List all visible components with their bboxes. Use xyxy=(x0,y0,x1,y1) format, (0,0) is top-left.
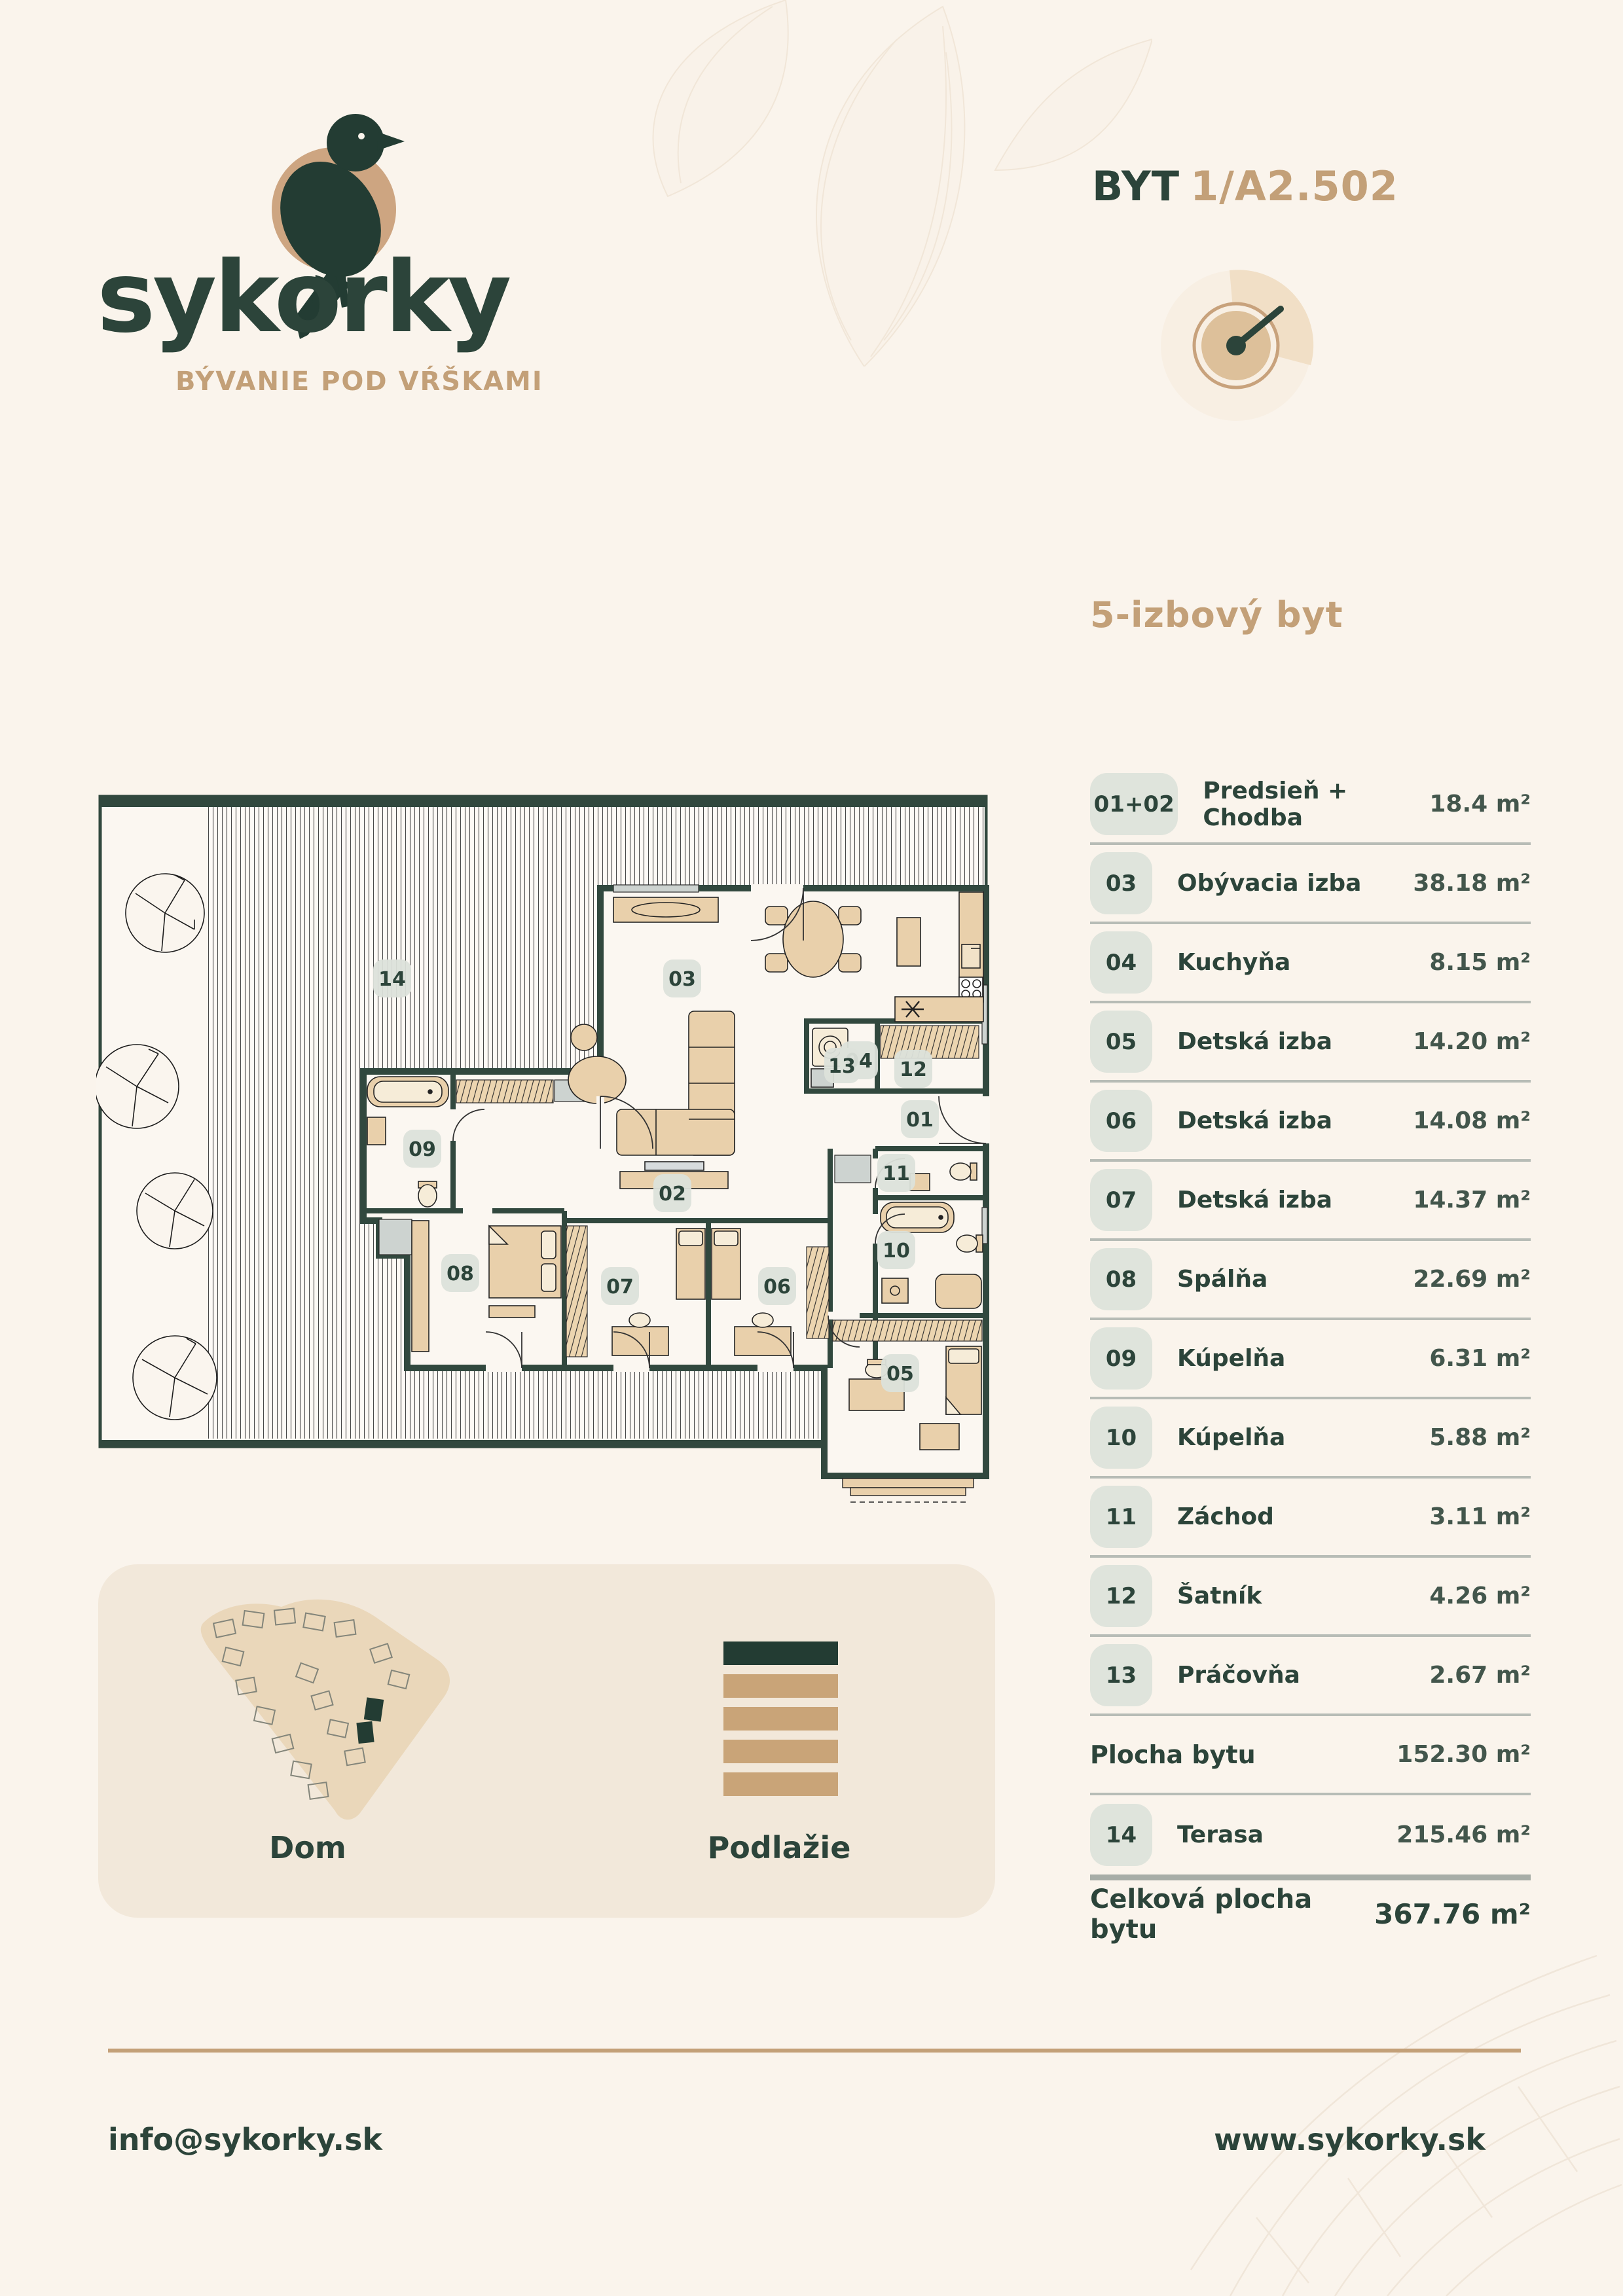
table-row-terasa: 14Terasa215.46 m² xyxy=(1090,1795,1531,1874)
room-name: Detská izba xyxy=(1177,1028,1332,1055)
room-name: Kúpelňa xyxy=(1177,1424,1285,1451)
room-area: 18.4 m² xyxy=(1429,791,1531,817)
table-row: 04Kuchyňa8.15 m² xyxy=(1090,924,1531,1003)
wardrobe-low-icon xyxy=(412,1221,429,1352)
room-name: Terasa xyxy=(1177,1821,1264,1848)
table-row: 01+02Predsieň + Chodba18.4 m² xyxy=(1090,766,1531,845)
sideboard-icon xyxy=(613,897,718,922)
toilet-icon xyxy=(957,1235,983,1252)
total-label: Celková plocha bytu xyxy=(1090,1884,1374,1945)
leaf-decoration-top xyxy=(589,0,1152,367)
side-table-icon xyxy=(571,1024,597,1050)
floorplan-room-badge-03: 03 xyxy=(663,960,701,997)
room-table: 01+02Predsieň + Chodba18.4 m² 03Obývacia… xyxy=(1090,766,1531,1948)
single-bed-icon xyxy=(946,1346,981,1414)
room-area: 14.37 m² xyxy=(1413,1187,1531,1213)
tree-icon xyxy=(126,874,204,952)
svg-text:02: 02 xyxy=(659,1183,686,1206)
room-area: 8.15 m² xyxy=(1429,949,1531,976)
svg-text:06: 06 xyxy=(763,1276,791,1299)
floorplan-room-badge-07: 07 xyxy=(601,1267,639,1305)
apartment-type-heading: 5-izbový byt xyxy=(1090,594,1343,636)
floorplan-room-badge-06: 06 xyxy=(758,1267,796,1305)
sink-icon xyxy=(367,1117,386,1145)
floorplan-room-badge-02: 02 xyxy=(653,1174,691,1212)
floorplan-room-badge-08: 08 xyxy=(441,1254,479,1292)
table-row-total: Celková plocha bytu367.76 m² xyxy=(1090,1874,1531,1948)
room-number-badge: 14 xyxy=(1090,1804,1152,1866)
room-number-badge: 06 xyxy=(1090,1090,1152,1152)
tree-icon xyxy=(96,1045,179,1128)
floor-bar-2 xyxy=(723,1740,838,1763)
floor-bar-1 xyxy=(723,1772,838,1796)
room-name: Šatník xyxy=(1177,1583,1262,1609)
table-row: 13Práčovňa2.67 m² xyxy=(1090,1637,1531,1716)
brand-wordmark: sykorky xyxy=(97,241,509,355)
svg-text:09: 09 xyxy=(409,1138,436,1161)
floor-bar-3 xyxy=(723,1707,838,1731)
room-area: 14.20 m² xyxy=(1413,1028,1531,1055)
svg-text:05: 05 xyxy=(886,1363,914,1386)
unit-number: 1/A2.502 xyxy=(1190,162,1398,210)
floorplan-svg: 14 03 04 13 12 01 02 09 08 07 06 11 10 0… xyxy=(96,789,995,1505)
table-row: 11Záchod3.11 m² xyxy=(1090,1479,1531,1558)
terrace-steps xyxy=(843,1479,974,1502)
unit-title: BYT1/A2.502 xyxy=(1092,162,1398,210)
room-area: 38.18 m² xyxy=(1413,870,1531,897)
svg-text:11: 11 xyxy=(883,1162,910,1185)
floorplan-room-badge-14: 14 xyxy=(373,960,411,997)
floor-bar-4 xyxy=(723,1674,838,1698)
room-name: Záchod xyxy=(1177,1503,1274,1530)
floor-bar-5 xyxy=(723,1641,838,1665)
table-row: 10Kúpelňa5.88 m² xyxy=(1090,1399,1531,1479)
room-number-badge: 03 xyxy=(1090,852,1152,914)
room-name: Spálňa xyxy=(1177,1266,1267,1293)
cabinet-icon xyxy=(920,1424,959,1450)
table-row: 09Kúpelňa6.31 m² xyxy=(1090,1320,1531,1399)
single-bed-icon xyxy=(676,1229,705,1299)
room-number-badge: 07 xyxy=(1090,1169,1152,1231)
bird-eye xyxy=(358,133,365,139)
room-name: Práčovňa xyxy=(1177,1662,1300,1689)
toilet-icon xyxy=(418,1181,437,1207)
unit-label: BYT xyxy=(1092,162,1180,210)
podlazie-label: Podlažie xyxy=(668,1830,890,1865)
room-number-badge: 04 xyxy=(1090,931,1152,994)
floorplan-room-badge-12: 12 xyxy=(894,1050,932,1088)
svg-text:13: 13 xyxy=(828,1055,856,1078)
room-number-badge: 09 xyxy=(1090,1327,1152,1390)
svg-text:08: 08 xyxy=(447,1263,474,1285)
table-row-plocha: Plocha bytu152.30 m² xyxy=(1090,1716,1531,1795)
svg-text:07: 07 xyxy=(606,1276,634,1299)
room-area: 14.08 m² xyxy=(1413,1107,1531,1134)
sink-cabinet-icon xyxy=(882,1278,908,1303)
kitchen-island-icon xyxy=(897,918,921,966)
floorplan-room-badge-11: 11 xyxy=(877,1154,915,1192)
bathtub-icon xyxy=(367,1077,448,1107)
floorplan-room-badge-05: 05 xyxy=(881,1354,919,1392)
room-name: Kuchyňa xyxy=(1177,949,1290,976)
shower-tub-icon xyxy=(936,1274,981,1308)
footer-divider xyxy=(108,2049,1521,2053)
footer-email-link[interactable]: info@sykorky.sk xyxy=(108,2122,382,2157)
site-area xyxy=(201,1600,450,1820)
floorplan-room-badge-13: 13 xyxy=(824,1048,860,1083)
room-area: 5.88 m² xyxy=(1429,1424,1531,1451)
floorplan-room-badge-10: 10 xyxy=(877,1231,915,1269)
room-number-badge: 11 xyxy=(1090,1486,1152,1548)
room-name: Obývacia izba xyxy=(1177,870,1361,897)
room-number-badge: 10 xyxy=(1090,1407,1152,1469)
svg-text:03: 03 xyxy=(668,968,696,991)
table-row: 08Spálňa22.69 m² xyxy=(1090,1241,1531,1320)
svg-text:14: 14 xyxy=(378,968,406,991)
floorplan-room-badge-09: 09 xyxy=(403,1130,441,1168)
room-area: 6.31 m² xyxy=(1429,1345,1531,1372)
room-area: 2.67 m² xyxy=(1429,1662,1531,1689)
floor-selector xyxy=(723,1641,838,1796)
tree-icon xyxy=(137,1173,213,1249)
dom-label: Dom xyxy=(196,1830,419,1865)
room-name: Detská izba xyxy=(1177,1107,1332,1134)
room-number-badge: 01+02 xyxy=(1090,773,1178,835)
table-row: 07Detská izba14.37 m² xyxy=(1090,1162,1531,1241)
site-map xyxy=(164,1587,504,1823)
room-number-badge: 12 xyxy=(1090,1565,1152,1627)
footer-website-link[interactable]: www.sykorky.sk xyxy=(1214,2122,1486,2157)
brand-tagline: BÝVANIE POD VŔŠKAMI xyxy=(175,367,543,397)
room-number-badge: 13 xyxy=(1090,1644,1152,1706)
room-name: Predsieň + Chodba xyxy=(1203,778,1429,831)
room-area: 3.11 m² xyxy=(1429,1503,1531,1530)
room-name: Detská izba xyxy=(1177,1187,1332,1213)
room-area: 4.26 m² xyxy=(1429,1583,1531,1609)
room-number-badge: 05 xyxy=(1090,1011,1152,1073)
toilet-icon xyxy=(950,1163,977,1180)
svg-text:12: 12 xyxy=(900,1058,927,1081)
plocha-value: 152.30 m² xyxy=(1396,1741,1531,1768)
single-bed-icon xyxy=(712,1229,740,1299)
plocha-label: Plocha bytu xyxy=(1090,1740,1256,1769)
room-area: 215.46 m² xyxy=(1396,1821,1531,1848)
total-value: 367.76 m² xyxy=(1374,1898,1531,1930)
tree-icon xyxy=(133,1336,217,1420)
svg-text:01: 01 xyxy=(906,1109,934,1132)
table-row: 12Šatník4.26 m² xyxy=(1090,1558,1531,1637)
room-number-badge: 08 xyxy=(1090,1248,1152,1310)
table-row: 05Detská izba14.20 m² xyxy=(1090,1003,1531,1083)
floorplan-room-badge-01: 01 xyxy=(901,1100,939,1138)
table-row: 03Obývacia izba38.18 m² xyxy=(1090,845,1531,924)
table-row: 06Detská izba14.08 m² xyxy=(1090,1083,1531,1162)
orientation-dial xyxy=(1150,259,1322,432)
svg-text:10: 10 xyxy=(883,1240,910,1263)
room-name: Kúpelňa xyxy=(1177,1345,1285,1372)
room-area: 22.69 m² xyxy=(1413,1266,1531,1293)
